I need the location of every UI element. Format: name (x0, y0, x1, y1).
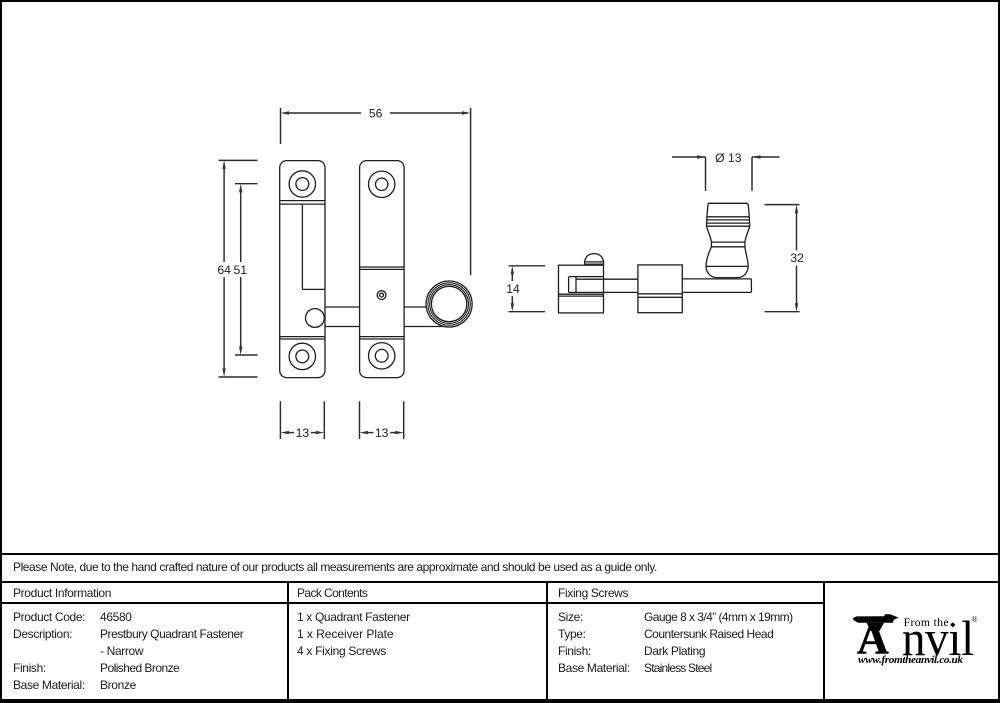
svg-text:32: 32 (790, 251, 804, 265)
svg-text:Ø 13: Ø 13 (715, 151, 742, 165)
svg-text:13: 13 (375, 426, 389, 440)
svg-text:13: 13 (296, 426, 310, 440)
svg-text:14: 14 (506, 282, 520, 296)
svg-text:56: 56 (369, 107, 383, 121)
svg-text:64: 64 (217, 263, 231, 277)
svg-text:51: 51 (234, 263, 248, 277)
